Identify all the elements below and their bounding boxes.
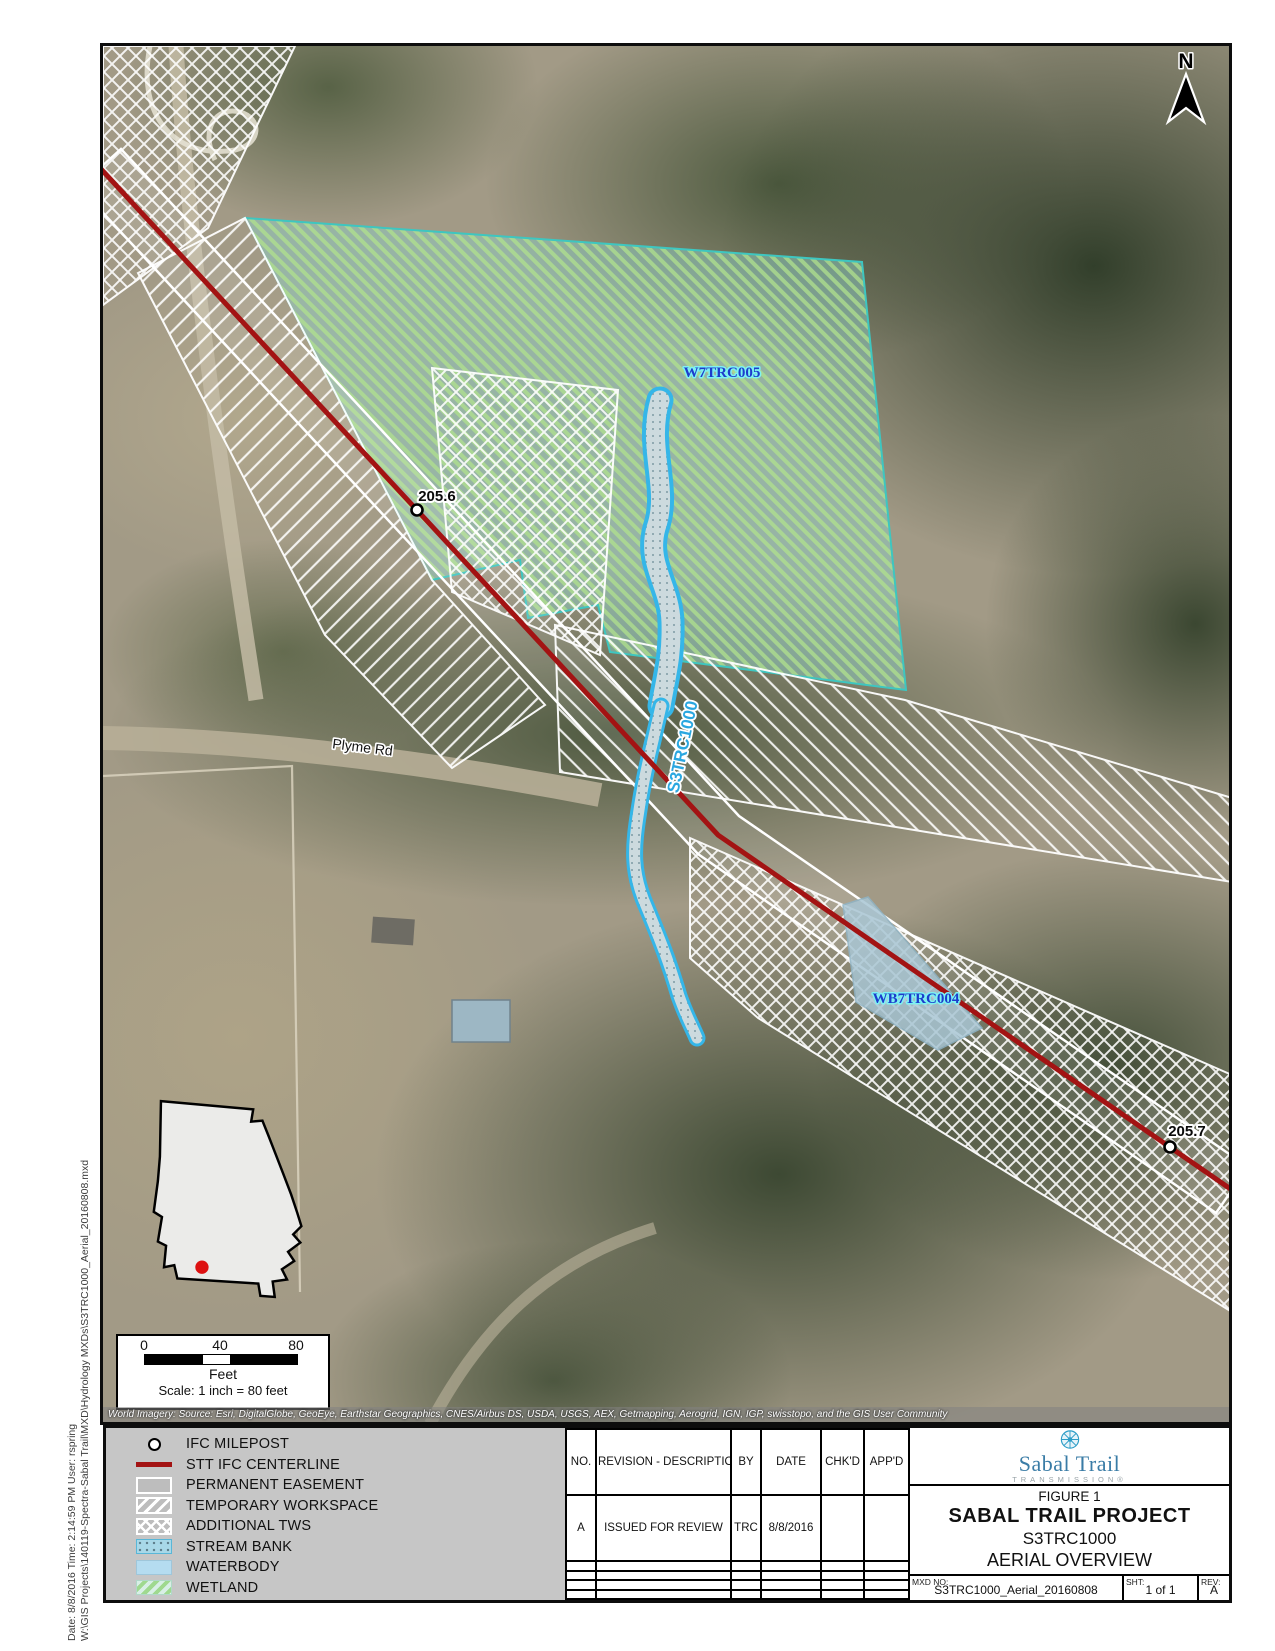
scale-unit: Feet	[118, 1366, 328, 1382]
legend-item: WATERBODY	[136, 1557, 565, 1578]
crossing-code: S3TRC1000	[910, 1529, 1229, 1549]
north-label: N	[1178, 50, 1193, 73]
revision-row	[566, 1580, 909, 1589]
revision-table: NO. REVISION - DESCRIPTION BY DATE CHK'D…	[565, 1428, 910, 1600]
north-arrow-icon: N	[1168, 50, 1204, 122]
col-by: BY	[731, 1429, 761, 1495]
revision-row	[566, 1561, 909, 1570]
buildings	[371, 917, 510, 1042]
scale-bar-box: 0 40 80 Feet Scale: 1 inch = 80 feet	[116, 1334, 330, 1410]
document-metadata-sidebar: Date: 8/8/2016 Time: 2:14:59 PM User: rs…	[66, 1160, 91, 1641]
milepost-marker	[412, 505, 423, 516]
legend: IFC MILEPOST STT IFC CENTERLINE PERMANEN…	[106, 1428, 565, 1600]
title-and-legend-block: IFC MILEPOST STT IFC CENTERLINE PERMANEN…	[103, 1425, 1232, 1603]
centerline-legend-icon	[136, 1458, 172, 1471]
temporary-workspace-legend-icon	[136, 1499, 172, 1512]
col-no: NO.	[566, 1429, 596, 1495]
sidebar-date-line: Date: 8/8/2016 Time: 2:14:59 PM User: rs…	[66, 1160, 79, 1641]
revision-row: A ISSUED FOR REVIEW TRC 8/8/2016	[566, 1495, 909, 1561]
drawing-info-row: MXD NO: S3TRC1000_Aerial_20160808 SHT: 1…	[910, 1576, 1229, 1600]
figure-page: Date: 8/8/2016 Time: 2:14:59 PM User: rs…	[0, 0, 1275, 1651]
georgia-inset-map	[132, 1095, 317, 1300]
mxd-number: S3TRC1000_Aerial_20160808	[910, 1583, 1122, 1597]
scale-tick: 40	[212, 1337, 228, 1353]
milepost-label: 205.7	[1168, 1123, 1206, 1140]
stream-bank-legend-icon	[136, 1540, 172, 1553]
logo-subtitle: TRANSMISSION®	[1012, 1475, 1127, 1484]
col-description: REVISION - DESCRIPTION	[596, 1429, 731, 1495]
col-date: DATE	[761, 1429, 821, 1495]
revision-row	[566, 1571, 909, 1580]
waterbody-label: WB7TRC004	[873, 991, 960, 1007]
georgia-outline	[154, 1101, 302, 1297]
revision-cell: REV: A	[1197, 1576, 1229, 1600]
revision-header-row: NO. REVISION - DESCRIPTION BY DATE CHK'D…	[566, 1429, 909, 1495]
mxd-number-cell: MXD NO: S3TRC1000_Aerial_20160808	[910, 1576, 1122, 1600]
revision-row	[566, 1590, 909, 1599]
sheet-number: 1 of 1	[1124, 1583, 1197, 1597]
scale-tick: 0	[140, 1337, 148, 1353]
figure-subtitle: AERIAL OVERVIEW	[910, 1550, 1229, 1571]
waterbody-legend-icon	[136, 1561, 172, 1574]
imagery-attribution: World Imagery: Source: Esri, DigitalGlob…	[103, 1407, 1229, 1422]
legend-item: TEMPORARY WORKSPACE	[136, 1496, 565, 1517]
col-chkd: CHK'D	[821, 1429, 864, 1495]
wetland-label: W7TRC005	[684, 365, 761, 381]
figure-title-area: FIGURE 1 SABAL TRAIL PROJECT S3TRC1000 A…	[910, 1486, 1229, 1576]
revision-letter: A	[1199, 1583, 1229, 1597]
scale-bar	[144, 1354, 298, 1365]
additional-tws-legend-icon	[136, 1520, 172, 1533]
col-appd: APP'D	[864, 1429, 909, 1495]
wetland-legend-icon	[136, 1581, 172, 1594]
legend-item: IFC MILEPOST	[136, 1434, 565, 1455]
legend-item: ADDITIONAL TWS	[136, 1516, 565, 1537]
title-block: Sabal Trail TRANSMISSION® FIGURE 1 SABAL…	[910, 1428, 1229, 1600]
legend-item: STT IFC CENTERLINE	[136, 1455, 565, 1476]
permanent-easement-legend-icon	[136, 1479, 172, 1492]
map-frame: 205.6 205.7 W7TRC005 WB7TRC004 S3TRC1000…	[100, 43, 1232, 1425]
milepost-legend-icon	[136, 1438, 172, 1451]
sheet-cell: SHT: 1 of 1	[1122, 1576, 1197, 1600]
sidebar-path-line: W:\GIS Projects\140119-Spectra-Sabal Tra…	[79, 1160, 92, 1641]
scale-tick: 80	[288, 1337, 304, 1353]
scale-ratio-text: Scale: 1 inch = 80 feet	[118, 1383, 328, 1398]
figure-number: FIGURE 1	[910, 1489, 1229, 1504]
legend-item: STREAM BANK	[136, 1537, 565, 1558]
project-location-dot	[195, 1261, 208, 1274]
legend-item: PERMANENT EASEMENT	[136, 1475, 565, 1496]
milepost-marker	[1165, 1142, 1176, 1153]
project-title: SABAL TRAIL PROJECT	[910, 1505, 1229, 1528]
milepost-label: 205.6	[418, 488, 456, 505]
company-logo: Sabal Trail TRANSMISSION®	[910, 1428, 1229, 1486]
scale-ticks: 0 40 80	[118, 1336, 328, 1354]
legend-item: WETLAND	[136, 1578, 565, 1599]
sabal-trail-logo-icon	[1055, 1428, 1085, 1451]
logo-wordmark: Sabal Trail	[1019, 1451, 1120, 1477]
